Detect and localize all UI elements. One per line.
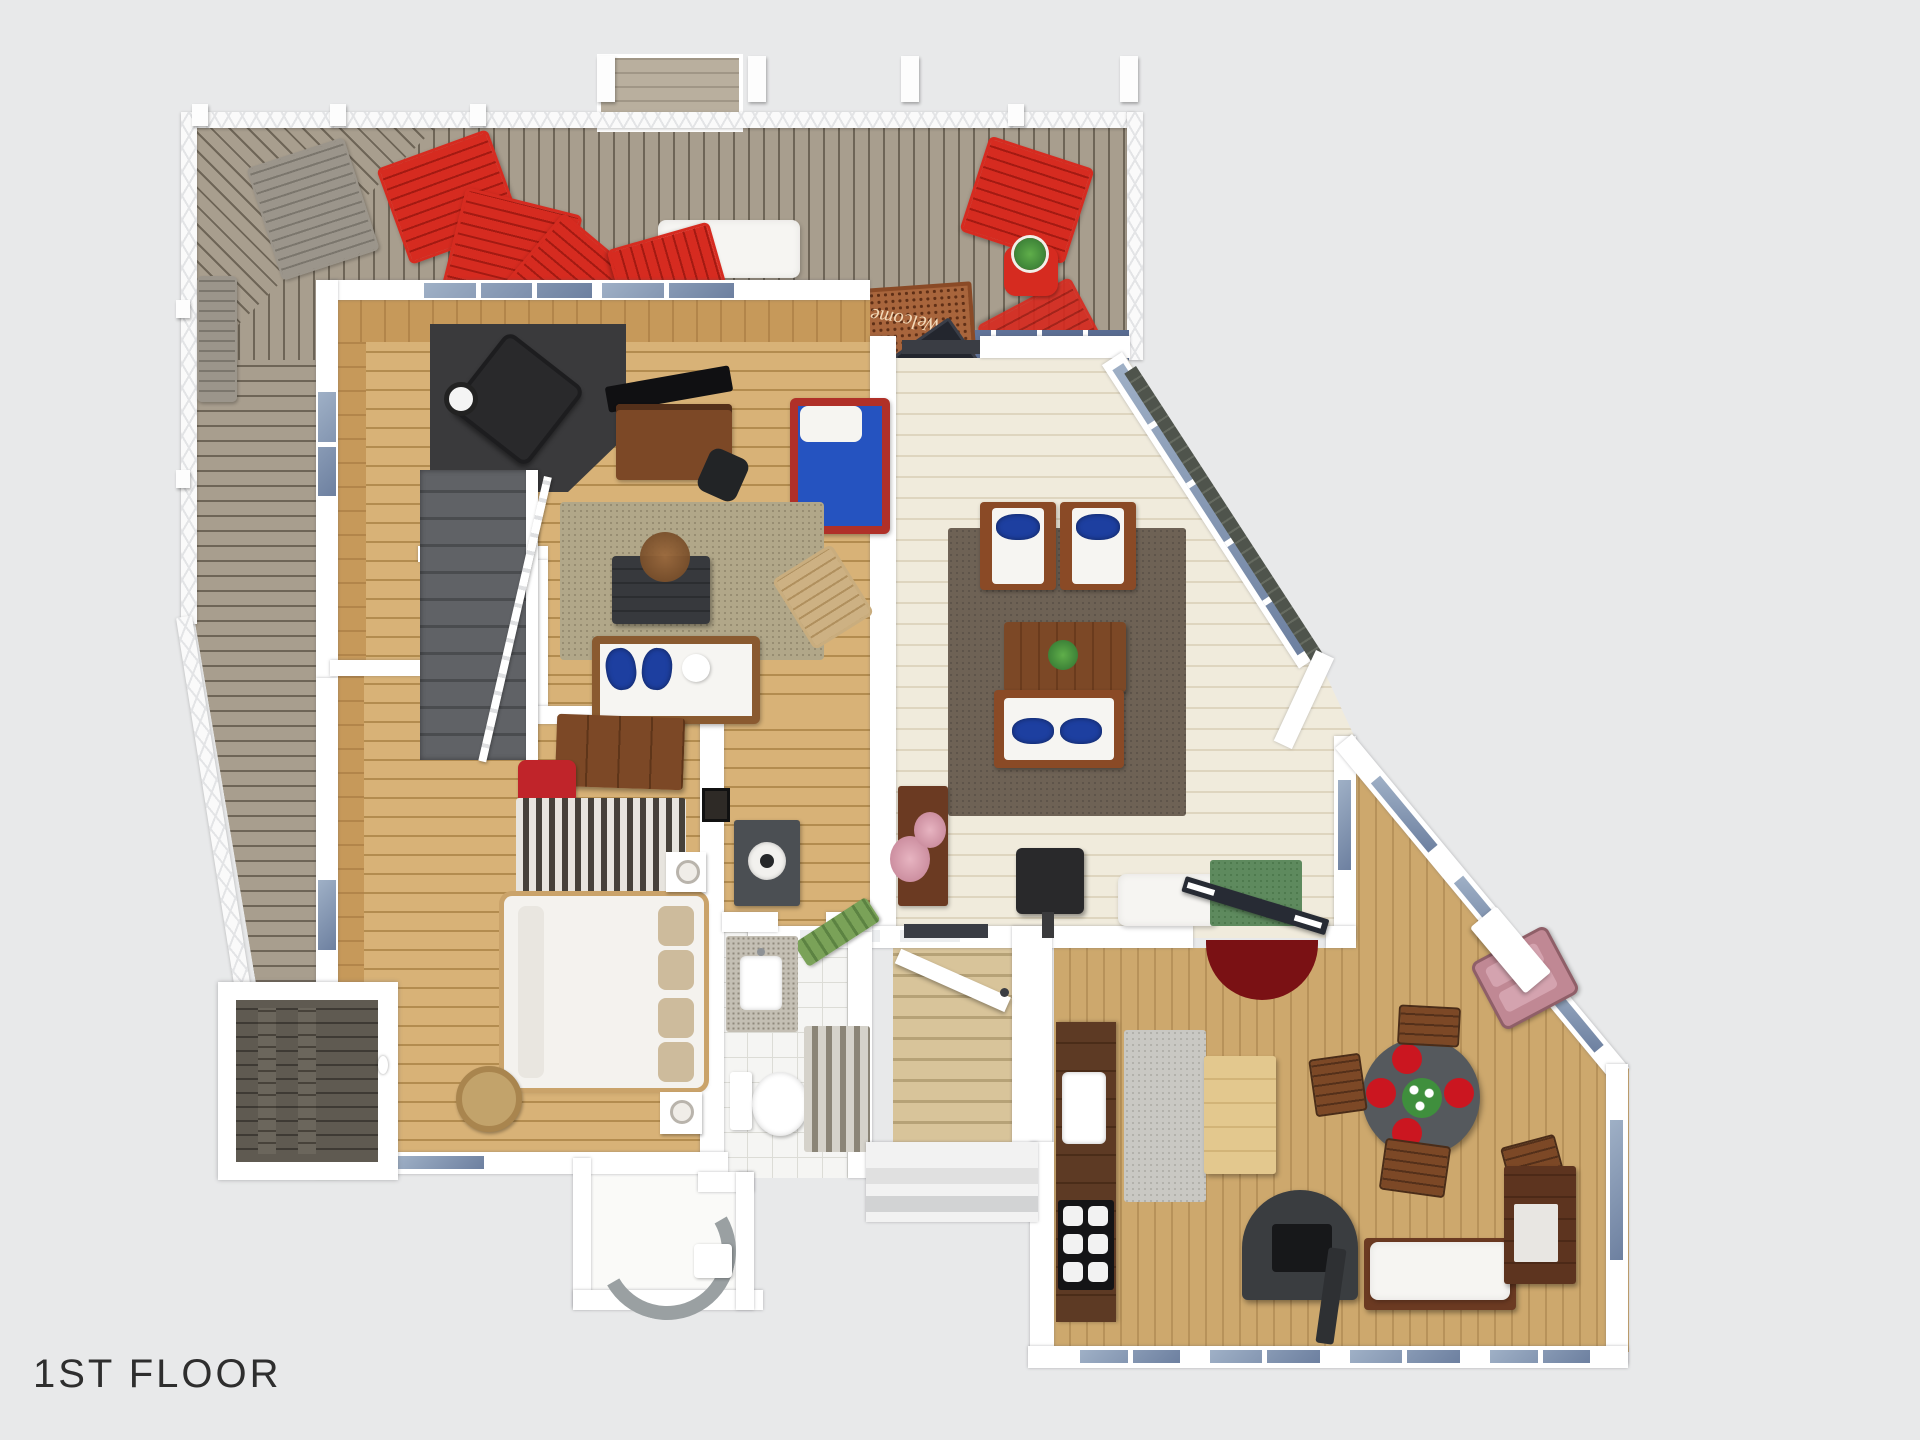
wood-stove — [448, 330, 586, 468]
stove-pipe — [1042, 912, 1054, 938]
glass-roofs: Welcome — [0, 0, 1920, 1440]
bedroom — [0, 0, 1920, 1440]
utility-room — [0, 0, 1920, 1440]
stove-firebox — [1272, 1224, 1332, 1272]
daybed — [790, 398, 890, 534]
bed-pillow — [658, 950, 694, 990]
storage-chest — [612, 556, 710, 624]
window-sill — [800, 930, 880, 942]
adirondack-chair — [441, 187, 583, 317]
loveseat-pillow — [1012, 718, 1054, 744]
wall — [870, 336, 896, 946]
roof-post — [597, 56, 615, 102]
toilet-bowl — [752, 1072, 808, 1136]
roof-post — [748, 56, 766, 102]
kitchen-counter — [1056, 1022, 1116, 1322]
porch-glass-band — [755, 296, 905, 352]
bed-pillow — [658, 906, 694, 946]
sauna — [0, 0, 1920, 1440]
entry-porch — [866, 1142, 1038, 1222]
daybed-pillow — [800, 406, 862, 442]
porch-step — [866, 1168, 1038, 1184]
sunroom-skylight — [903, 330, 1129, 418]
wall — [1606, 1064, 1628, 1364]
deck-railing-right — [1127, 112, 1143, 360]
bed-fold — [518, 906, 544, 1078]
adirondack-chair — [499, 212, 652, 363]
dining-chair — [1500, 1134, 1568, 1201]
wall — [698, 1172, 754, 1192]
floors — [0, 0, 1920, 1440]
window — [1080, 1350, 1180, 1363]
curved-shower-screen — [582, 1166, 751, 1335]
sunroom-rug — [948, 528, 1186, 816]
door-handle — [1000, 988, 1009, 997]
stair-stringer — [526, 470, 538, 760]
hearth-pad — [430, 324, 626, 492]
bathroom-vanity — [726, 936, 798, 1032]
dining-chair — [1379, 1138, 1452, 1199]
entry-threshold — [904, 924, 988, 938]
roof-post — [1120, 56, 1138, 102]
hall-floor — [722, 712, 870, 938]
wall — [316, 280, 338, 678]
semicircle-rug — [1206, 940, 1318, 1000]
window — [1610, 1120, 1623, 1260]
loveseat-pillow — [1060, 718, 1102, 744]
sofa-round-pillow — [682, 654, 710, 682]
red-side-table — [714, 304, 764, 348]
washstand — [734, 820, 800, 906]
dresser — [555, 714, 685, 790]
deck — [0, 0, 1920, 1440]
wall — [700, 712, 724, 1182]
deck-railing-left — [181, 112, 197, 624]
living-room — [0, 0, 1920, 1440]
rocking-chair — [246, 137, 379, 281]
deck-floor — [195, 128, 1135, 995]
dining-table — [1362, 1038, 1480, 1156]
adirondack-chair — [376, 129, 522, 265]
red-round-table — [1004, 246, 1058, 296]
bed-pillow — [658, 1042, 694, 1082]
walls — [0, 0, 1920, 1440]
railing-post — [1008, 104, 1024, 126]
staircase — [0, 0, 1920, 1440]
window — [602, 283, 734, 298]
sofa — [592, 636, 760, 724]
entry-door — [895, 949, 1011, 1012]
wall-desk-white — [1470, 906, 1551, 994]
potted-plant — [1014, 238, 1046, 270]
sauna-structure — [218, 982, 398, 1180]
pink-flowers — [914, 812, 946, 848]
desk — [616, 404, 732, 480]
dining-chair — [1308, 1053, 1368, 1118]
kitchen-sink — [1062, 1072, 1106, 1144]
nightstand — [666, 852, 706, 892]
bedroom-wall-lining — [338, 676, 364, 1156]
living-room-wall-lining — [338, 298, 870, 342]
dining-chair — [1397, 1004, 1461, 1047]
floor-label: 1ST FLOOR — [33, 1352, 282, 1397]
deck-stairs — [601, 58, 739, 128]
place-setting — [1392, 1044, 1422, 1074]
railing-post — [470, 104, 486, 126]
wall — [748, 926, 1048, 948]
nightstand — [660, 1092, 702, 1134]
sauna-bench-tier — [298, 1008, 316, 1154]
deck-floor-left-wing — [195, 360, 330, 995]
welcome-mat: Welcome — [836, 281, 977, 364]
armchair — [980, 502, 1056, 590]
deck-floor-corner — [195, 128, 435, 368]
striped-rug — [516, 798, 686, 904]
sliding-barn-door — [1181, 876, 1329, 935]
place-setting — [1366, 1078, 1396, 1108]
window — [1350, 1350, 1460, 1363]
sofa-pillow — [603, 646, 639, 692]
stairs — [420, 470, 532, 760]
window-sill — [900, 930, 960, 942]
red-ottoman — [518, 760, 576, 812]
window — [318, 880, 336, 950]
wall — [532, 560, 548, 710]
coffee-table — [1004, 622, 1126, 692]
railing-post — [330, 104, 346, 126]
screen-door — [893, 317, 1011, 444]
table-lamp — [670, 1100, 694, 1124]
gas-cooktop — [1058, 1200, 1114, 1290]
door-threshold — [902, 340, 980, 354]
railing-post — [176, 300, 190, 318]
bed — [504, 896, 704, 1088]
deck-railing-left-diagonal — [176, 615, 251, 991]
sauna-benches — [236, 1000, 378, 1162]
sunroom-floor — [896, 358, 1356, 938]
kitchen-island — [1204, 1056, 1276, 1174]
window — [1338, 780, 1351, 870]
wicker-basket — [456, 1066, 522, 1132]
shower-mat — [804, 1026, 870, 1152]
accent-chair-pink — [1469, 924, 1581, 1031]
wooden-armchair — [772, 544, 875, 651]
kitchen-dining — [0, 0, 1920, 1440]
desk-chair — [694, 445, 751, 504]
hutch-cabinet — [1504, 1166, 1576, 1284]
wall — [1030, 1142, 1054, 1354]
stove-chimney — [444, 382, 478, 416]
place-setting — [1444, 1078, 1474, 1108]
utility-fixture — [694, 1244, 732, 1278]
wall — [1048, 926, 1193, 948]
wall — [848, 932, 872, 1178]
bathroom-sink — [740, 956, 782, 1010]
bay-window-wall — [1102, 352, 1319, 669]
deck-railing-top — [195, 112, 1135, 128]
pellet-stove — [1016, 848, 1084, 914]
tv-screen — [605, 365, 734, 412]
toilet-tank — [730, 1072, 752, 1130]
pink-flowers — [890, 836, 930, 882]
entry — [0, 0, 1920, 1440]
green-bench — [793, 897, 880, 967]
place-setting — [1392, 1118, 1422, 1148]
window — [1210, 1350, 1320, 1363]
bathroom-floor — [722, 932, 872, 1178]
wall — [1334, 736, 1356, 940]
entry-ramp-floor — [893, 935, 1015, 1142]
wall — [1326, 926, 1356, 948]
wall — [573, 1158, 591, 1308]
bed-pillow — [658, 998, 694, 1038]
deck-table-white — [658, 220, 800, 278]
window — [398, 1156, 484, 1169]
wall — [722, 912, 778, 932]
floor-plan-canvas: Welcome — [0, 0, 1920, 1440]
picture-frame — [702, 788, 730, 822]
railing-post — [176, 470, 190, 488]
kitchen-dining-floor — [1054, 742, 1629, 1352]
sunroom — [0, 0, 1920, 1440]
small-bench — [469, 514, 536, 543]
window-wall-diagonal — [1335, 734, 1629, 1082]
floor-lamp — [744, 504, 784, 544]
wall — [330, 280, 870, 300]
armchair-pillow — [1076, 514, 1120, 540]
deck-bench — [197, 276, 237, 402]
living-rug — [560, 502, 824, 660]
window — [424, 283, 592, 298]
window — [1490, 1350, 1590, 1363]
table-lamp — [676, 860, 700, 884]
porch-step — [866, 1196, 1038, 1212]
utility-room-floor — [591, 1170, 739, 1294]
armchair-pillow — [996, 514, 1040, 540]
floor-lamp — [700, 516, 736, 552]
wall — [1274, 650, 1334, 749]
wall — [418, 546, 548, 562]
window — [318, 392, 336, 496]
bedroom-floor — [338, 676, 724, 1158]
roof-post — [901, 56, 919, 102]
white-chest — [1364, 1238, 1516, 1310]
green-rug — [1210, 860, 1302, 926]
table-plant — [1048, 640, 1078, 670]
wall — [573, 1290, 763, 1310]
stove-pipe — [1315, 1247, 1346, 1345]
wall — [328, 1152, 728, 1174]
stair-railing — [478, 476, 551, 762]
sauna-door-handle — [378, 1056, 388, 1074]
wash-bowl — [748, 842, 786, 880]
wall — [736, 1172, 754, 1310]
railing-post — [192, 104, 208, 126]
wall — [530, 706, 724, 724]
wall — [330, 660, 422, 676]
loveseat — [994, 690, 1124, 768]
pampas-plant — [640, 532, 690, 582]
wall — [980, 336, 1130, 358]
wash-bowl-drain — [760, 854, 774, 868]
sofa-pillow — [640, 647, 674, 692]
console-table — [898, 786, 948, 906]
bay-window-sill — [1124, 366, 1327, 669]
sauna-bench-tier — [258, 1008, 276, 1154]
living-room-wall-lining-left — [338, 342, 366, 678]
wall — [1012, 926, 1052, 1142]
adirondack-chair — [959, 135, 1095, 264]
kitchen-rug — [1124, 1030, 1206, 1202]
wall — [1028, 1346, 1628, 1368]
chair-reflection — [768, 299, 837, 347]
faucet — [757, 948, 765, 956]
adirondack-chair — [607, 221, 736, 344]
potted-plant — [722, 296, 752, 326]
bathroom-hall — [0, 0, 1920, 1440]
side-table-white — [1118, 874, 1218, 926]
centerpiece-flowers — [1402, 1078, 1442, 1118]
armchair — [1060, 502, 1136, 590]
wood-stove-kitchen — [1242, 1190, 1358, 1300]
welcome-mat-text: Welcome — [841, 298, 971, 341]
adirondack-chair — [976, 277, 1114, 410]
living-room-floor — [338, 298, 870, 712]
wall — [316, 678, 338, 1178]
wall — [826, 912, 872, 932]
